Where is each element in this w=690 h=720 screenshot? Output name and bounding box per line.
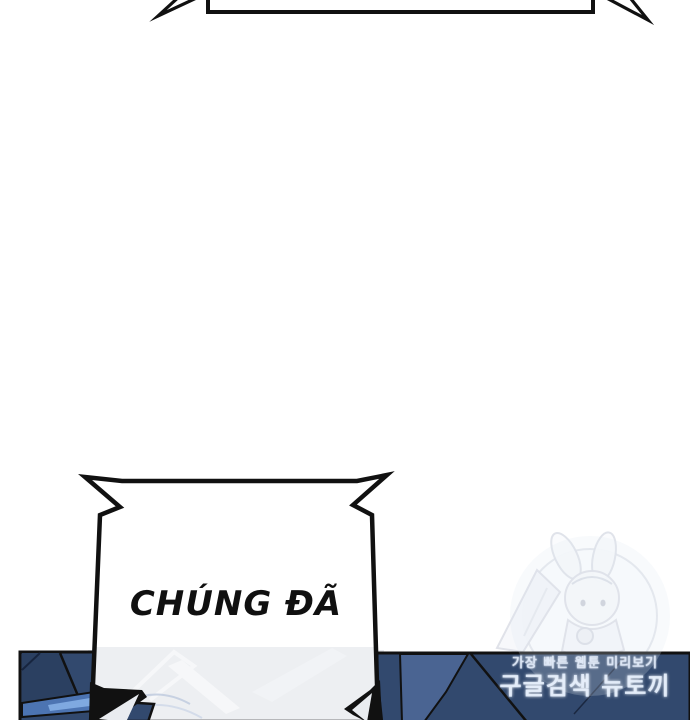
bubble-glow-area (88, 647, 384, 720)
speech-text: CHÚNG ĐÃ (97, 584, 375, 624)
panel-left-block (20, 652, 94, 720)
top-bubble-box (208, 0, 593, 12)
watermark-text-large: 구글검색 뉴토끼 (494, 666, 676, 701)
top-speech-bubble (158, 0, 648, 20)
top-bubble-tail-right (599, 0, 648, 20)
comic-page: CHÚNG ĐÃ 가장 빠른 웹툰 미리보기 구글검색 뉴토끼 (0, 0, 690, 720)
top-bubble-tail-left (158, 0, 205, 16)
